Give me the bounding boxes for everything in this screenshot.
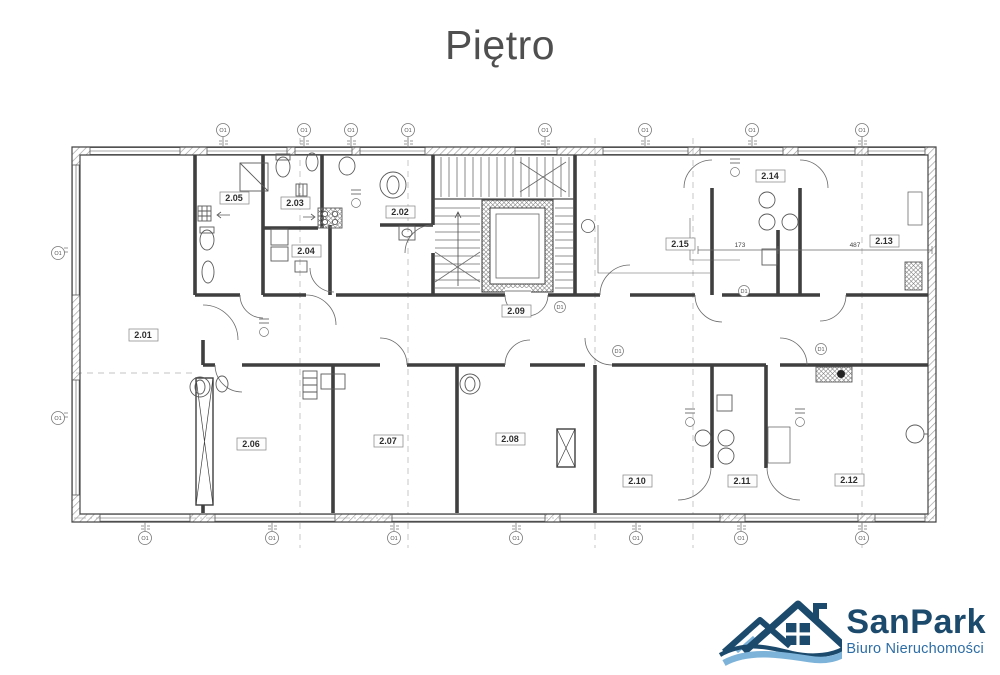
svg-text:O1: O1 [404, 128, 411, 134]
sanpark-house-icon [714, 595, 842, 667]
room-label-2-15: 2.15 [666, 238, 695, 250]
room-label-2-09: 2.09 [502, 305, 531, 317]
room-label-2-07: 2.07 [374, 435, 403, 447]
svg-text:173: 173 [735, 242, 746, 249]
svg-text:2.03: 2.03 [286, 198, 304, 208]
room-label-2-08: 2.08 [496, 433, 525, 445]
room-label-2-10: 2.10 [623, 475, 652, 487]
room-label-2-11: 2.11 [728, 475, 757, 487]
elevator-shaft [482, 200, 553, 294]
room-label-2-01: 2.01 [129, 329, 158, 341]
svg-text:O1: O1 [219, 128, 226, 134]
svg-text:D1: D1 [614, 349, 621, 355]
svg-text:2.13: 2.13 [875, 236, 893, 246]
svg-text:O1: O1 [748, 128, 755, 134]
svg-text:O1: O1 [512, 536, 519, 542]
svg-text:2.01: 2.01 [134, 330, 152, 340]
room-label-2-02: 2.02 [386, 206, 415, 218]
svg-text:O1: O1 [858, 128, 865, 134]
svg-text:2.04: 2.04 [297, 246, 315, 256]
svg-text:O1: O1 [858, 536, 865, 542]
svg-text:2.12: 2.12 [840, 475, 858, 485]
svg-text:2.11: 2.11 [733, 476, 750, 486]
svg-text:O1: O1 [737, 536, 744, 542]
logo-name: SanPark [846, 605, 986, 639]
svg-text:O1: O1 [347, 128, 354, 134]
svg-text:D1: D1 [556, 305, 563, 311]
svg-text:O1: O1 [54, 251, 61, 257]
logo-text-block: SanPark Biuro Nieruchomości [846, 605, 986, 657]
svg-text:D1: D1 [740, 289, 747, 295]
svg-text:O1: O1 [632, 536, 639, 542]
sanpark-logo: SanPark Biuro Nieruchomości [714, 595, 986, 667]
svg-text:487: 487 [850, 242, 861, 249]
svg-text:2.07: 2.07 [379, 436, 397, 446]
room-label-2-06: 2.06 [237, 438, 266, 450]
svg-text:O1: O1 [141, 536, 148, 542]
window-markers-bottom: O1 O1 O1 O1 O1 O1 O1 [139, 522, 869, 545]
svg-text:O1: O1 [541, 128, 548, 134]
svg-text:D1: D1 [817, 347, 824, 353]
svg-text:2.02: 2.02 [391, 207, 409, 217]
room-label-2-05: 2.05 [220, 192, 249, 204]
window-markers-top: O1 O1 O1 O1 O1 O1 O1 O1 [217, 124, 869, 149]
svg-text:2.09: 2.09 [507, 306, 525, 316]
room-label-2-14: 2.14 [756, 170, 785, 182]
svg-text:O1: O1 [641, 128, 648, 134]
room-label-2-04: 2.04 [292, 245, 321, 257]
svg-text:2.10: 2.10 [628, 476, 646, 486]
floor-plan-page: Piętro [0, 0, 1000, 675]
floor-plan-drawing: 173 487 O1 O1 O1 O1 O1 O1 O1 O1 O1 O1 O1… [0, 0, 1000, 675]
svg-text:O1: O1 [54, 416, 61, 422]
svg-text:O1: O1 [268, 536, 275, 542]
svg-text:2.05: 2.05 [225, 193, 243, 203]
svg-text:O1: O1 [390, 536, 397, 542]
room-label-2-12: 2.12 [835, 474, 864, 486]
svg-text:2.15: 2.15 [671, 239, 689, 249]
svg-text:O1: O1 [300, 128, 307, 134]
svg-text:2.14: 2.14 [761, 171, 779, 181]
room-label-2-13: 2.13 [870, 235, 899, 247]
logo-subtitle: Biuro Nieruchomości [846, 642, 986, 657]
window-markers-left: O1 O1 [52, 247, 69, 425]
room-label-2-03: 2.03 [281, 197, 310, 209]
windows-bottom [100, 514, 925, 521]
svg-text:2.08: 2.08 [501, 434, 519, 444]
svg-text:2.06: 2.06 [242, 439, 260, 449]
